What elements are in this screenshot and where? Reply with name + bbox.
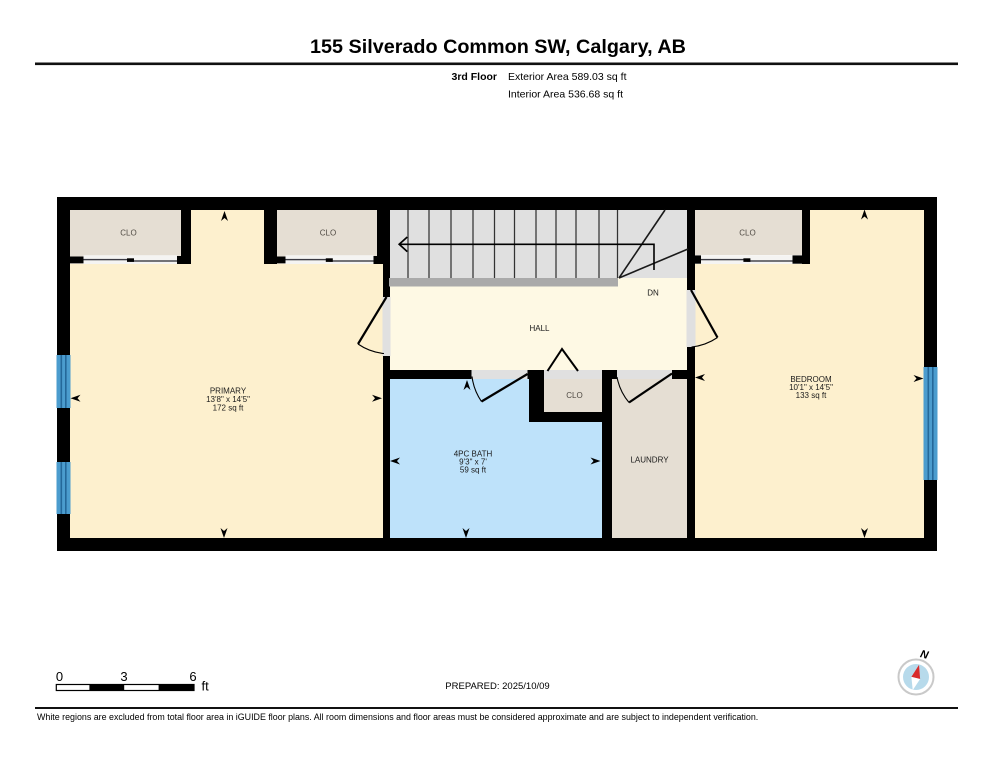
svg-text:White regions are excluded fro: White regions are excluded from total fl… — [37, 712, 758, 722]
svg-text:Exterior Area 589.03 sq ft: Exterior Area 589.03 sq ft — [508, 71, 627, 83]
svg-text:ft: ft — [202, 679, 210, 694]
svg-text:3: 3 — [120, 669, 127, 684]
svg-text:3rd Floor: 3rd Floor — [451, 71, 497, 83]
svg-text:HALL: HALL — [529, 324, 550, 333]
svg-text:Interior Area 536.68 sq ft: Interior Area 536.68 sq ft — [508, 89, 623, 101]
svg-text:133 sq ft: 133 sq ft — [796, 391, 827, 400]
svg-text:DN: DN — [647, 288, 659, 297]
svg-text:0: 0 — [56, 669, 63, 684]
svg-text:CLO: CLO — [120, 229, 136, 238]
svg-text:CLO: CLO — [320, 229, 336, 238]
svg-text:59 sq ft: 59 sq ft — [460, 466, 487, 475]
svg-text:LAUNDRY: LAUNDRY — [630, 456, 669, 465]
svg-text:PREPARED: 2025/10/09: PREPARED: 2025/10/09 — [445, 681, 549, 692]
svg-text:6: 6 — [189, 669, 196, 684]
svg-text:CLO: CLO — [739, 229, 755, 238]
svg-text:CLO: CLO — [566, 391, 582, 400]
svg-text:172 sq ft: 172 sq ft — [213, 403, 244, 412]
svg-text:155 Silverado Common SW, Calga: 155 Silverado Common SW, Calgary, AB — [310, 36, 686, 58]
